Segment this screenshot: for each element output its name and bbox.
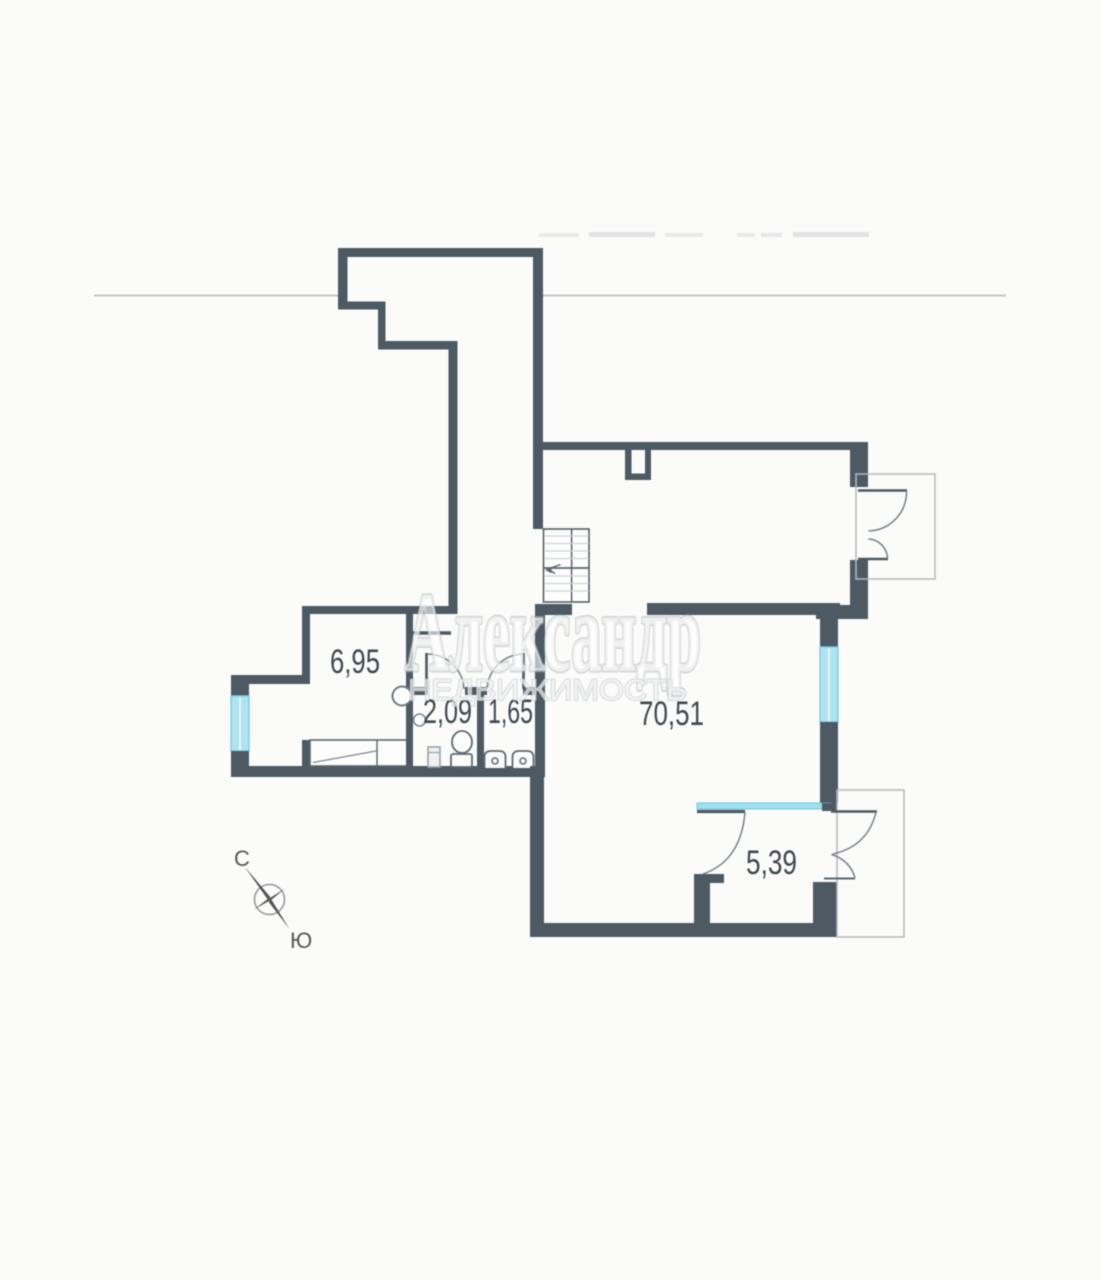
svg-text:6,95: 6,95 <box>330 643 380 681</box>
svg-text:С: С <box>234 846 250 871</box>
svg-text:Ю: Ю <box>290 928 312 953</box>
svg-text:НЕДВИЖИМОСТЬ: НЕДВИЖИМОСТЬ <box>408 674 687 707</box>
svg-text:5,39: 5,39 <box>746 844 797 882</box>
